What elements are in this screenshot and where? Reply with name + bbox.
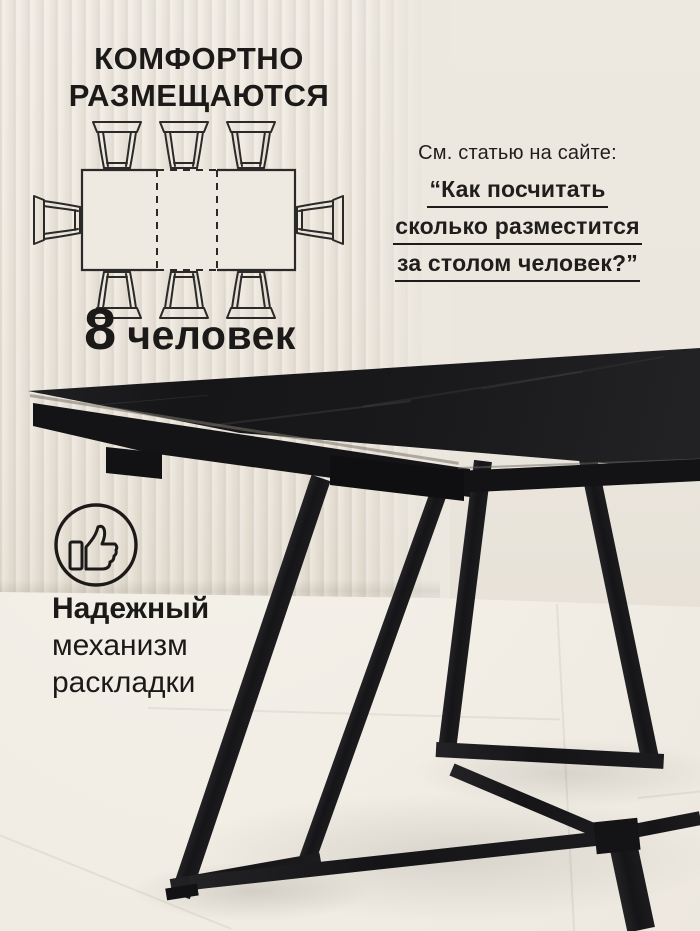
table-outline-fill — [82, 170, 295, 270]
chair-icon — [34, 196, 80, 244]
headline-line1: КОМФОРТНО — [20, 40, 378, 77]
article-title-line2: сколько разместится — [393, 215, 642, 245]
chair-icon — [297, 196, 343, 244]
article-intro: См. статью на сайте: — [355, 142, 680, 165]
article-note: См. статью на сайте: “Как посчитать скол… — [355, 142, 680, 289]
table-stretcher-junction — [593, 818, 640, 854]
article-title-line1: “Как посчитать — [427, 178, 607, 208]
capacity-unit: человек — [127, 312, 296, 358]
feature-line3: раскладки — [52, 664, 282, 701]
feature-line1: Надежный — [52, 590, 282, 627]
capacity-number: 8 — [84, 297, 117, 362]
chair-icon — [160, 122, 208, 168]
product-infographic: КОМФОРТНО РАЗМЕЩАЮТСЯ 8человек — [0, 0, 700, 931]
capacity-label: 8человек — [30, 296, 350, 363]
feature-line2: механизм — [52, 627, 282, 664]
marble-vein — [481, 356, 664, 390]
seating-plan-diagram — [20, 113, 352, 325]
article-title-line3: за столом человек?” — [395, 252, 640, 282]
feature-text: Надежный механизм раскладки — [52, 590, 282, 701]
headline: КОМФОРТНО РАЗМЕЩАЮТСЯ — [20, 40, 378, 114]
chair-icon — [93, 122, 141, 168]
headline-line2: РАЗМЕЩАЮТСЯ — [20, 77, 378, 114]
chair-icon — [227, 122, 275, 168]
thumbs-up-icon — [52, 501, 140, 589]
